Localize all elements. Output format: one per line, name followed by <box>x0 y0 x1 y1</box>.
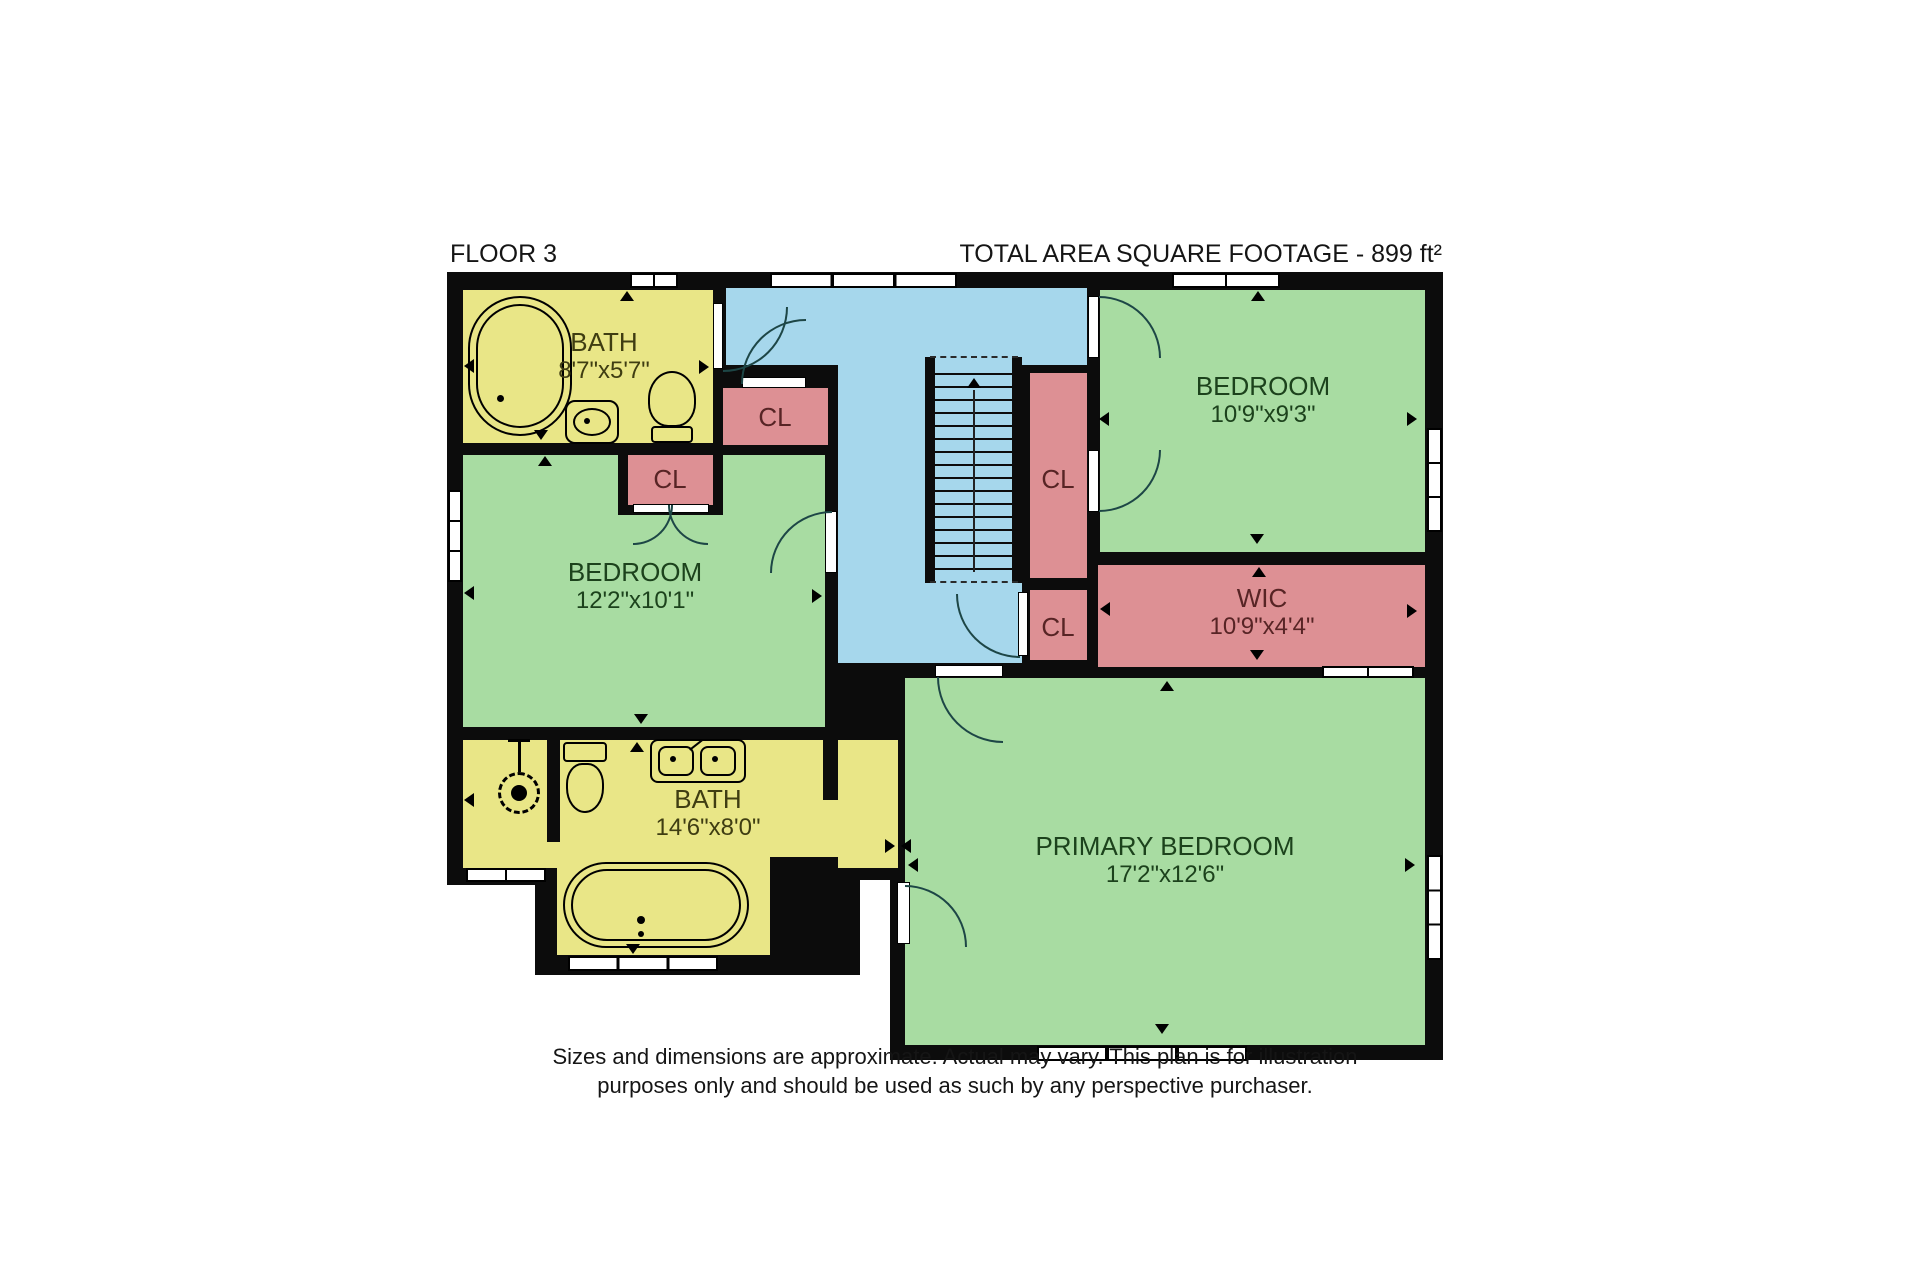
door-leaf <box>1088 296 1099 358</box>
direction-arrow-icon <box>464 586 474 600</box>
direction-arrow-icon <box>1407 412 1417 426</box>
direction-arrow-icon <box>464 359 474 373</box>
floor-title: FLOOR 3 <box>450 240 557 269</box>
shower-head-center <box>511 785 527 801</box>
direction-arrow-icon <box>620 291 634 301</box>
window-icon <box>630 273 678 288</box>
sink-basin <box>573 408 611 436</box>
direction-arrow-icon <box>1405 858 1415 872</box>
direction-arrow-icon <box>885 839 895 853</box>
direction-arrow-icon <box>1099 412 1109 426</box>
room-name: BATH <box>499 328 709 357</box>
door-leaf <box>1088 450 1099 512</box>
room-dims: 8'7"x5'7" <box>499 357 709 384</box>
room-label-bath-top: BATH 8'7"x5'7" <box>499 328 709 384</box>
direction-arrow-icon <box>1100 602 1110 616</box>
direction-arrow-icon <box>901 839 911 853</box>
closet-label: CL <box>745 402 805 433</box>
direction-arrow-icon <box>1252 567 1266 577</box>
room-label-bedroom-top-right: BEDROOM 10'9"x9'3" <box>1160 372 1366 428</box>
bath-corridor-opening <box>823 800 838 857</box>
room-label-bath-bottom: BATH 14'6"x8'0" <box>608 785 808 841</box>
room-name: WIC <box>1162 584 1362 613</box>
room-dims: 12'2"x10'1" <box>535 587 735 614</box>
door-leaf <box>935 665 1003 677</box>
direction-arrow-icon <box>1155 1024 1169 1034</box>
window-icon <box>1427 428 1442 532</box>
closet-label: CL <box>1028 464 1088 495</box>
direction-arrow-icon <box>634 714 648 724</box>
closet-label: CL <box>1028 612 1088 643</box>
shower-pipe-bar <box>508 739 530 742</box>
direction-arrow-icon <box>908 858 918 872</box>
room-name: BEDROOM <box>535 558 735 587</box>
closet-label: CL <box>640 464 700 495</box>
direction-arrow-icon <box>630 742 644 752</box>
direction-arrow-icon <box>1407 604 1417 618</box>
window-icon <box>448 490 462 582</box>
toilet-tank <box>563 742 607 762</box>
sink-drain <box>670 756 676 762</box>
window-icon <box>568 956 718 971</box>
window-icon <box>466 868 546 882</box>
direction-arrow-icon <box>1160 681 1174 691</box>
toilet-tank <box>651 426 693 443</box>
stairs-up-arrow-icon <box>967 378 981 388</box>
bathtub-drain <box>638 931 644 937</box>
room-name: PRIMARY BEDROOM <box>1015 832 1315 861</box>
disclaimer: Sizes and dimensions are approximate. Ac… <box>460 1042 1450 1100</box>
sink-drain <box>584 418 590 424</box>
total-area-title: TOTAL AREA SQUARE FOOTAGE - 899 ft² <box>959 240 1442 269</box>
room-dims: 10'9"x4'4" <box>1162 613 1362 640</box>
direction-arrow-icon <box>1250 534 1264 544</box>
direction-arrow-icon <box>1250 650 1264 660</box>
bathtub-drain <box>497 395 504 402</box>
room-label-wic: WIC 10'9"x4'4" <box>1162 584 1362 640</box>
stairs-up-arrow-line <box>973 390 975 572</box>
hallway-left-strip <box>838 365 925 663</box>
direction-arrow-icon <box>534 430 548 440</box>
toilet-icon <box>566 763 604 813</box>
shower-pipe <box>518 740 521 772</box>
disclaimer-line-1: Sizes and dimensions are approximate. Ac… <box>460 1042 1450 1071</box>
room-label-primary-bedroom: PRIMARY BEDROOM 17'2"x12'6" <box>1015 832 1315 888</box>
sink-basin <box>658 746 694 776</box>
window-icon <box>1427 855 1442 960</box>
bathtub-drain <box>637 916 645 924</box>
window-icon <box>770 273 957 288</box>
room-label-bedroom-left: BEDROOM 12'2"x10'1" <box>535 558 735 614</box>
window-icon <box>1172 273 1280 288</box>
sink-basin <box>700 746 736 776</box>
sink-drain <box>712 756 718 762</box>
disclaimer-line-2: purposes only and should be used as such… <box>460 1071 1450 1100</box>
room-name: BEDROOM <box>1160 372 1366 401</box>
direction-arrow-icon <box>464 793 474 807</box>
door-leaf <box>713 303 723 369</box>
direction-arrow-icon <box>538 456 552 466</box>
direction-arrow-icon <box>1251 291 1265 301</box>
sliding-door-icon <box>1322 666 1414 678</box>
room-dims: 10'9"x9'3" <box>1160 401 1366 428</box>
bathtub-inner <box>571 869 741 941</box>
direction-arrow-icon <box>626 944 640 954</box>
room-dims: 17'2"x12'6" <box>1015 861 1315 888</box>
floor-plan-page: FLOOR 3 TOTAL AREA SQUARE FOOTAGE - 899 … <box>0 0 1920 1280</box>
room-dims: 14'6"x8'0" <box>608 814 808 841</box>
direction-arrow-icon <box>812 589 822 603</box>
room-name: BATH <box>608 785 808 814</box>
